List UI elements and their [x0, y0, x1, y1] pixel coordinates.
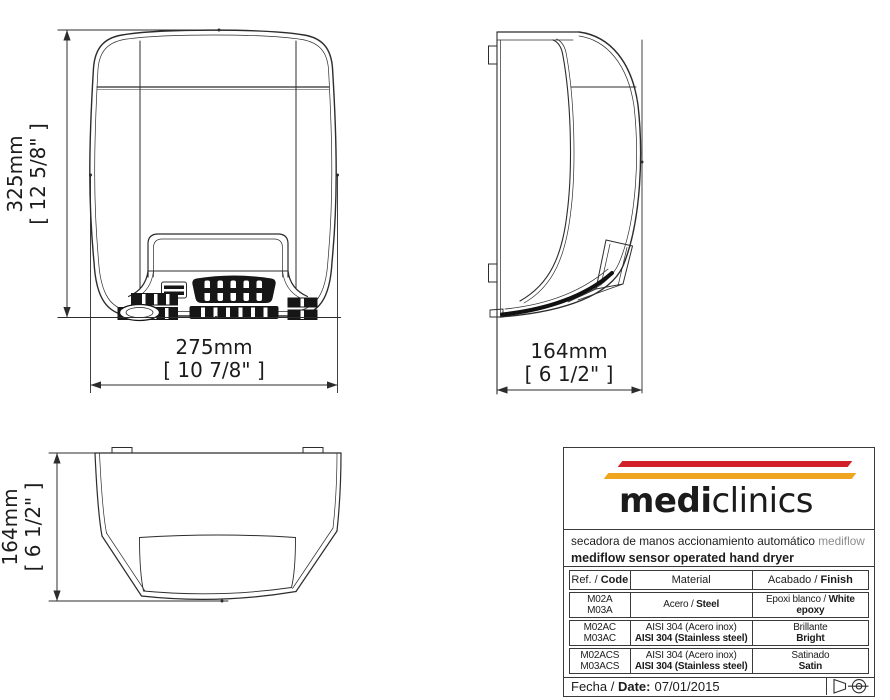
side-view-drawing: 164mm [ 6 1/2" ] [460, 0, 690, 410]
brand-name: mediclinics [564, 484, 868, 518]
header-material: Material [630, 571, 752, 589]
cell-finish: Epoxi blanco / White epoxy [752, 593, 868, 617]
table-row: M02A M03A Acero / Steel Epoxi blanco / W… [569, 592, 869, 618]
logo-stripe-yellow [604, 473, 857, 479]
brand-name-bold: medi [619, 481, 711, 521]
date-label-bold: Date: [618, 679, 651, 694]
front-view-drawing: 325mm [ 12 5/8" ] 275mm [ 10 7/8" ] [0, 0, 360, 410]
dimension-label-height-in: [ 12 5/8" ] [26, 123, 50, 225]
outlet-grille [190, 276, 279, 320]
title-block-footer: Fecha / Date:07/01/2015 [564, 677, 874, 695]
table-header-row: Ref. / Code Material Acabado / Finish [569, 570, 869, 590]
cell-material: AISI 304 (Acero inox) AISI 304 (Stainles… [630, 621, 752, 645]
cell-material: Acero / Steel [630, 593, 752, 617]
dimension-label-width-mm: 275mm [175, 335, 252, 359]
spec-table: Ref. / Code Material Acabado / Finish M0… [564, 567, 874, 677]
product-description-es: secadora de manos accionamiento automáti… [571, 533, 867, 550]
inlet-grille-left [118, 293, 179, 321]
cell-codes: M02AC M03AC [570, 621, 630, 645]
top-view-drawing: 164mm [ 6 1/2" ] [0, 425, 360, 625]
dimension-label-height-mm: 325mm [3, 135, 27, 212]
cell-codes: M02A M03A [570, 593, 630, 617]
product-description: secadora de manos accionamiento automáti… [564, 530, 874, 567]
cell-material: AISI 304 (Acero inox) AISI 304 (Stainles… [630, 649, 752, 673]
title-block: mediclinics secadora de manos accionamie… [563, 447, 875, 697]
table-row: M02ACS M03ACS AISI 304 (Acero inox) AISI… [569, 648, 869, 674]
cell-codes: M02ACS M03ACS [570, 649, 630, 673]
product-description-en: mediflow sensor operated hand dryer [571, 550, 867, 567]
table-row: M02AC M03AC AISI 304 (Acero inox) AISI 3… [569, 620, 869, 646]
logo-stripe-red [618, 461, 853, 467]
date-field: Fecha / Date:07/01/2015 [564, 678, 826, 695]
first-angle-projection-icon [826, 678, 874, 695]
inlet-grille-right [288, 298, 318, 321]
dimension-label-depth-mm: 164mm [530, 339, 607, 363]
drawing-sheet: 325mm [ 12 5/8" ] 275mm [ 10 7/8" ] [0, 0, 890, 700]
front-outline [90, 30, 336, 316]
dimension-label-depth-mm: 164mm [0, 488, 22, 565]
cell-finish: Brillante Bright [752, 621, 868, 645]
header-code: Ref. / Code [570, 571, 630, 589]
date-label: Fecha / [571, 679, 618, 694]
description-es-text: secadora de manos accionamiento automáti… [571, 534, 815, 548]
dimension-label-depth-in: [ 6 1/2" ] [525, 362, 614, 386]
brand-logo: mediclinics [564, 448, 874, 530]
dimension-label-width-in: [ 10 7/8" ] [163, 358, 265, 382]
dimension-label-depth-in: [ 6 1/2" ] [21, 483, 45, 572]
cell-finish: Satinado Satin [752, 649, 868, 673]
brand-name-light: clinics [711, 481, 813, 521]
description-es-product: mediflow [818, 534, 865, 548]
header-finish: Acabado / Finish [752, 571, 868, 589]
date-value: 07/01/2015 [654, 679, 719, 694]
